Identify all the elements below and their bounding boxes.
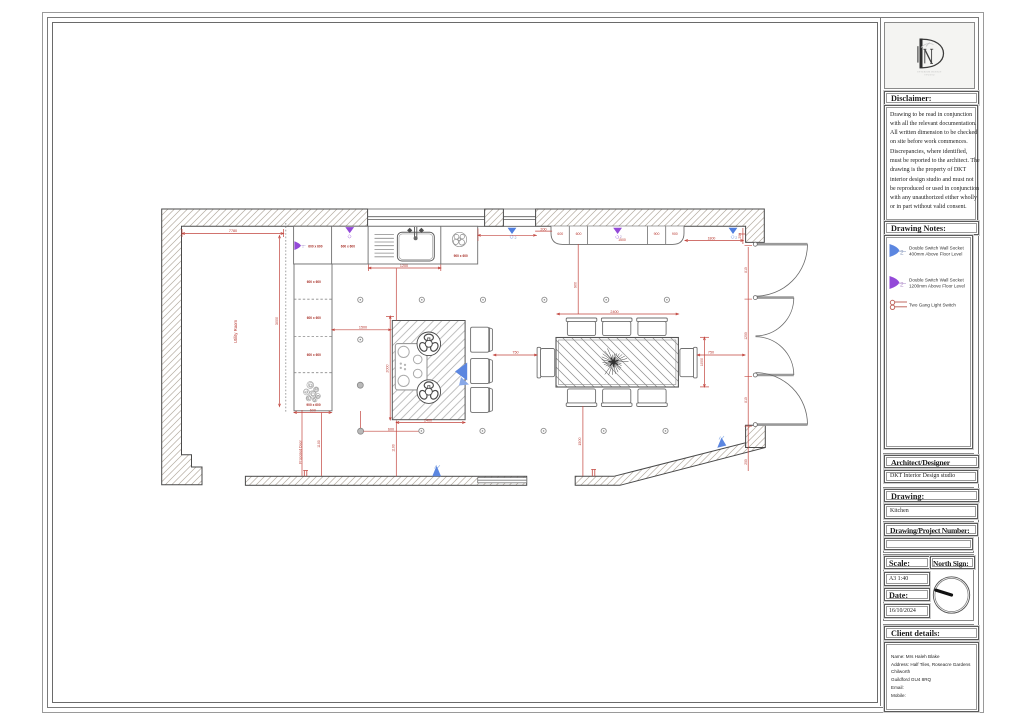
svg-text:810: 810 bbox=[744, 267, 748, 273]
svg-text:7780: 7780 bbox=[229, 229, 237, 233]
svg-text:1200: 1200 bbox=[744, 332, 748, 340]
svg-text:900 x 600: 900 x 600 bbox=[454, 254, 468, 258]
svg-text:INTERIOR DESIGN: INTERIOR DESIGN bbox=[917, 72, 941, 74]
svg-text:2: 2 bbox=[620, 235, 622, 239]
svg-text:1800: 1800 bbox=[708, 237, 716, 241]
svg-text:2: 2 bbox=[515, 236, 517, 240]
svg-text:STUDIO: STUDIO bbox=[924, 75, 934, 77]
svg-text:200: 200 bbox=[540, 227, 546, 231]
svg-text:900 x 600: 900 x 600 bbox=[306, 403, 320, 407]
svg-text:2: 2 bbox=[735, 236, 737, 240]
svg-text:600: 600 bbox=[310, 408, 316, 412]
svg-text:750: 750 bbox=[512, 351, 518, 355]
svg-text:600 x 600: 600 x 600 bbox=[308, 244, 322, 248]
svg-text:1500: 1500 bbox=[359, 326, 367, 330]
svg-text:1400: 1400 bbox=[424, 418, 432, 422]
svg-text:1000: 1000 bbox=[700, 358, 704, 366]
svg-text:600 x 600: 600 x 600 bbox=[307, 353, 321, 357]
svg-text:Double Switch Wall Socket: Double Switch Wall Socket bbox=[909, 278, 964, 283]
svg-text:1500: 1500 bbox=[578, 437, 582, 445]
svg-text:2: 2 bbox=[302, 244, 304, 248]
svg-text:1100: 1100 bbox=[317, 440, 321, 448]
svg-text:600: 600 bbox=[388, 427, 394, 431]
svg-text:1100: 1100 bbox=[392, 444, 396, 452]
svg-text:600: 600 bbox=[576, 232, 582, 236]
svg-text:3000: 3000 bbox=[275, 317, 279, 325]
svg-text:600 x 600: 600 x 600 bbox=[307, 280, 321, 284]
svg-text:900: 900 bbox=[672, 232, 678, 236]
svg-text:200: 200 bbox=[744, 459, 748, 465]
svg-text:2: 2 bbox=[900, 282, 904, 289]
svg-text:2: 2 bbox=[900, 250, 904, 257]
svg-text:200: 200 bbox=[738, 233, 742, 239]
svg-text:Proposed Door: Proposed Door bbox=[299, 439, 303, 463]
svg-text:900: 900 bbox=[574, 282, 578, 288]
svg-text:810: 810 bbox=[744, 397, 748, 403]
svg-text:600: 600 bbox=[557, 232, 563, 236]
svg-text:400mm Above Floor Level: 400mm Above Floor Level bbox=[909, 252, 962, 257]
svg-text:1200: 1200 bbox=[400, 264, 408, 268]
svg-text:750: 750 bbox=[708, 351, 714, 355]
svg-text:2000: 2000 bbox=[385, 364, 389, 372]
svg-text:Utility Room: Utility Room bbox=[233, 320, 238, 344]
svg-text:2400: 2400 bbox=[610, 310, 618, 314]
svg-text:600 x 600: 600 x 600 bbox=[341, 244, 355, 248]
svg-text:Double Switch Wall Socket: Double Switch Wall Socket bbox=[909, 246, 964, 251]
svg-text:600 x 600: 600 x 600 bbox=[307, 316, 321, 320]
svg-text:Two Gang Light Switch: Two Gang Light Switch bbox=[909, 303, 956, 308]
svg-text:900: 900 bbox=[654, 232, 660, 236]
svg-text:1200mm Above Floor Level: 1200mm Above Floor Level bbox=[909, 284, 965, 289]
